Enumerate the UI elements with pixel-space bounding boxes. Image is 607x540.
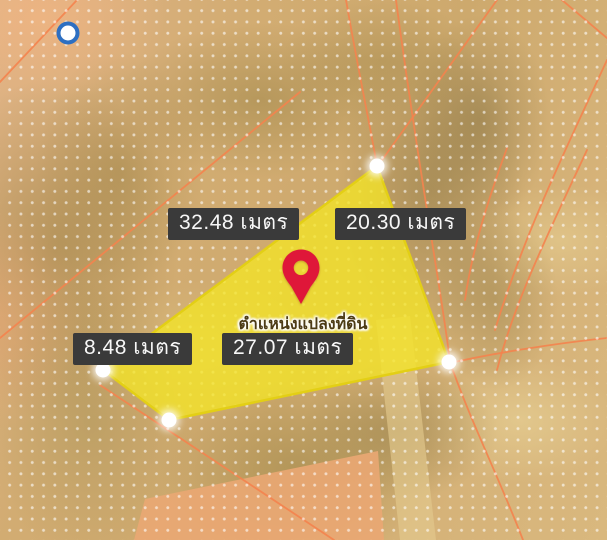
location-pin-icon[interactable] (281, 248, 321, 306)
measurement-label-northwest: 32.48 เมตร (168, 208, 299, 240)
vertex-handle-south[interactable] (162, 413, 177, 428)
vertex-handle-north[interactable] (370, 159, 385, 174)
parcel-polygon[interactable] (103, 166, 449, 420)
vertex-handle-east[interactable] (442, 355, 457, 370)
measurement-label-south: 27.07 เมตร (222, 333, 353, 365)
blue-point-marker[interactable] (57, 22, 80, 45)
measurement-label-west: 8.48 เมตร (73, 333, 192, 365)
measurement-label-northeast: 20.30 เมตร (335, 208, 466, 240)
map-canvas[interactable]: ตำแหน่งแปลงที่ดิน 32.48 เมตร 20.30 เมตร … (0, 0, 607, 540)
